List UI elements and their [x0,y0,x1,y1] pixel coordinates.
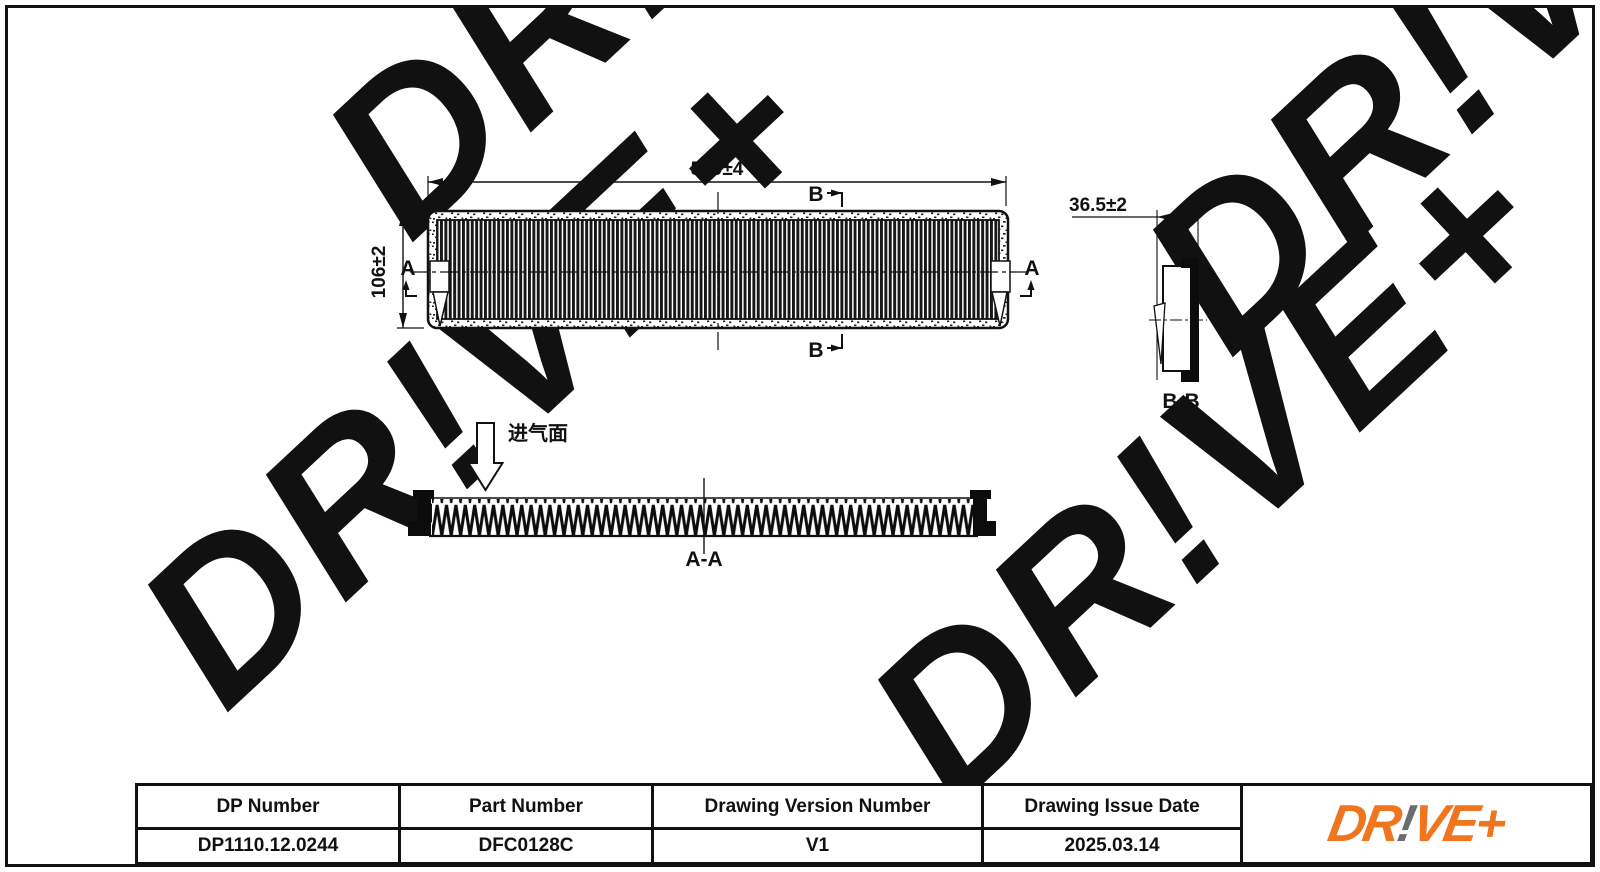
section-a-marker-right: A [1020,257,1040,296]
left-tab [430,261,449,292]
dp-number-value: DP1110.12.0244 [138,830,398,862]
intake-face-label: 进气面 [508,421,568,445]
right-tab [991,261,1010,292]
title-col-drawing-version: Drawing Version Number V1 [651,786,981,862]
section-aa-label: A-A [685,548,722,571]
title-col-part-number: Part Number DFC0128C [398,786,651,862]
title-block: DP Number DP1110.12.0244 Part Number DFC… [135,783,1593,865]
drawing-page: DR!VE+ DR!VE+ DR!VE+ DR!VE+ [0,0,1600,872]
part-number-header: Part Number [401,786,651,830]
drawing-version-value: V1 [654,830,981,862]
issue-date-header: Drawing Issue Date [984,786,1240,830]
issue-date-value: 2025.03.14 [984,830,1240,862]
title-col-dp-number: DP Number DP1110.12.0244 [138,786,398,862]
brand-logo-cell: DR!VE+ [1240,786,1590,862]
section-b-bottom-label: B [808,339,823,362]
width-dim-label: 519±4 [691,159,744,180]
section-b-marker-bottom: B [808,334,842,362]
watermark-layer: DR!VE+ DR!VE+ DR!VE+ DR!VE+ [92,0,1600,844]
section-a-left-label: A [400,257,415,280]
drawing-version-header: Drawing Version Number [654,786,981,830]
title-col-issue-date: Drawing Issue Date 2025.03.14 [981,786,1240,862]
driveplus-logo: DR!VE+ [1325,798,1508,850]
technical-drawing: DR!VE+ DR!VE+ DR!VE+ DR!VE+ [0,0,1600,872]
logo-part-dr: DR [1324,795,1403,853]
section-bb-label: B-B [1162,390,1199,413]
part-number-value: DFC0128C [401,830,651,862]
section-b-top-label: B [808,183,823,206]
section-a-right-label: A [1024,257,1039,280]
depth-dim-label: 36.5±2 [1069,195,1127,216]
dp-number-header: DP Number [138,786,398,830]
logo-part-veplus: VE+ [1408,795,1509,853]
height-dim-label: 106±2 [369,246,390,299]
